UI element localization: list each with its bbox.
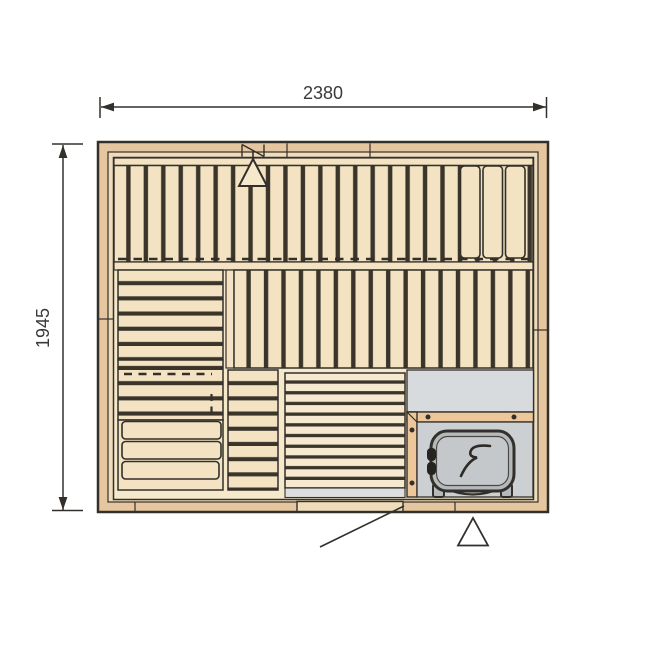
left-bench-slats — [118, 270, 223, 360]
door-threshold — [297, 502, 403, 512]
middle-bench-left-rail — [226, 270, 234, 368]
heater-control-knob — [427, 462, 436, 475]
top-bench-back-rail — [114, 158, 533, 166]
height-dimension: 1945 — [33, 144, 83, 511]
top-bench-front-rail — [114, 262, 533, 270]
bench-panel — [122, 422, 221, 440]
screw — [410, 481, 415, 486]
arrowhead-left — [101, 103, 114, 112]
heater-control-knob — [427, 448, 436, 461]
left-bench-lower-slats — [118, 360, 223, 420]
screw — [410, 428, 415, 433]
bench-panel — [122, 442, 221, 460]
heater-floor-area — [407, 370, 534, 412]
screw — [512, 415, 517, 420]
duckboard-slats — [285, 373, 405, 488]
width-dimension-label: 2380 — [303, 83, 343, 103]
arrowhead-right — [533, 103, 546, 112]
arrowhead-up — [59, 145, 68, 158]
arrowhead-down — [59, 497, 68, 510]
height-dimension-label: 1945 — [33, 308, 53, 348]
left-bench — [118, 270, 223, 490]
width-dimension: 2380 — [100, 83, 547, 118]
middle-bench — [226, 270, 533, 368]
bench-panel — [483, 166, 503, 258]
entrance-floor-strip — [285, 488, 405, 498]
bench-panel — [461, 166, 481, 258]
middle-bench-slats — [234, 270, 533, 368]
step-bench-slats — [228, 370, 278, 490]
top-bench — [114, 158, 533, 270]
bench-panel — [122, 462, 219, 480]
sauna-floorplan-canvas: 2380 1945 — [0, 0, 650, 650]
sauna-heater — [427, 431, 514, 497]
bench-panel — [506, 166, 526, 258]
sauna-floorplan-drawing: 2380 1945 — [0, 0, 650, 650]
floor-duckboard — [285, 373, 405, 498]
exhaust-vent-triangle — [458, 518, 488, 546]
screw — [426, 415, 431, 420]
